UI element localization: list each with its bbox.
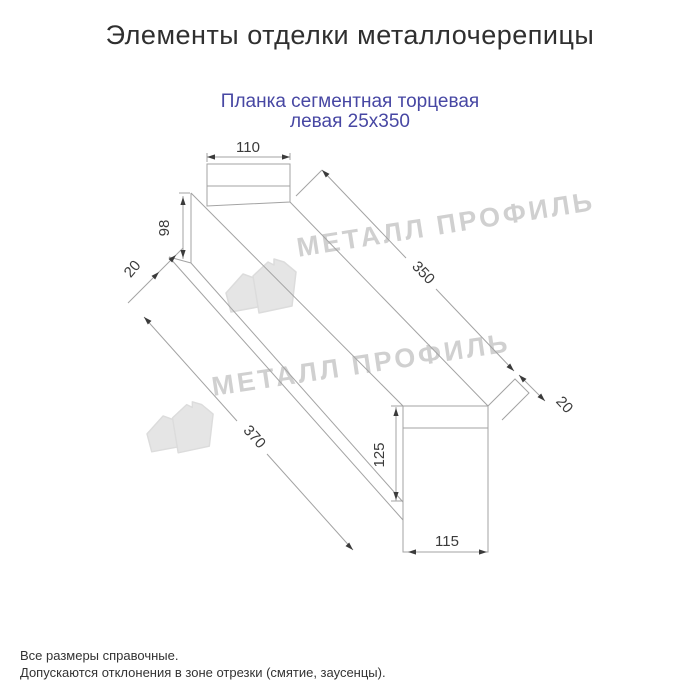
dim-label-left-height: 98 xyxy=(156,220,173,237)
footnote-line1: Все размеры справочные. xyxy=(20,648,178,663)
dimension-labels: 110 98 20 350 370 20 125 115 xyxy=(121,139,577,550)
drawing-page: МЕТАЛЛ ПРОФИЛЬ МЕТАЛЛ ПРОФИЛЬ Элементы о… xyxy=(0,0,700,700)
dim-label-left-fold: 20 xyxy=(121,257,145,281)
dim-label-right-height: 125 xyxy=(371,442,388,467)
dim-label-edge-top: 350 xyxy=(408,258,438,288)
dim-label-edge-bottom: 370 xyxy=(240,422,269,452)
footnote-line2: Допускаются отклонения в зоне отрезки (с… xyxy=(20,665,386,680)
dim-label-right-fold: 20 xyxy=(552,393,576,417)
dimension-arrows xyxy=(142,154,547,554)
technical-drawing: 110 98 20 350 370 20 125 115 xyxy=(0,0,700,700)
dim-label-top-width: 110 xyxy=(236,139,260,156)
dim-label-bottom-width: 115 xyxy=(435,533,459,550)
profile-outline xyxy=(169,164,529,552)
